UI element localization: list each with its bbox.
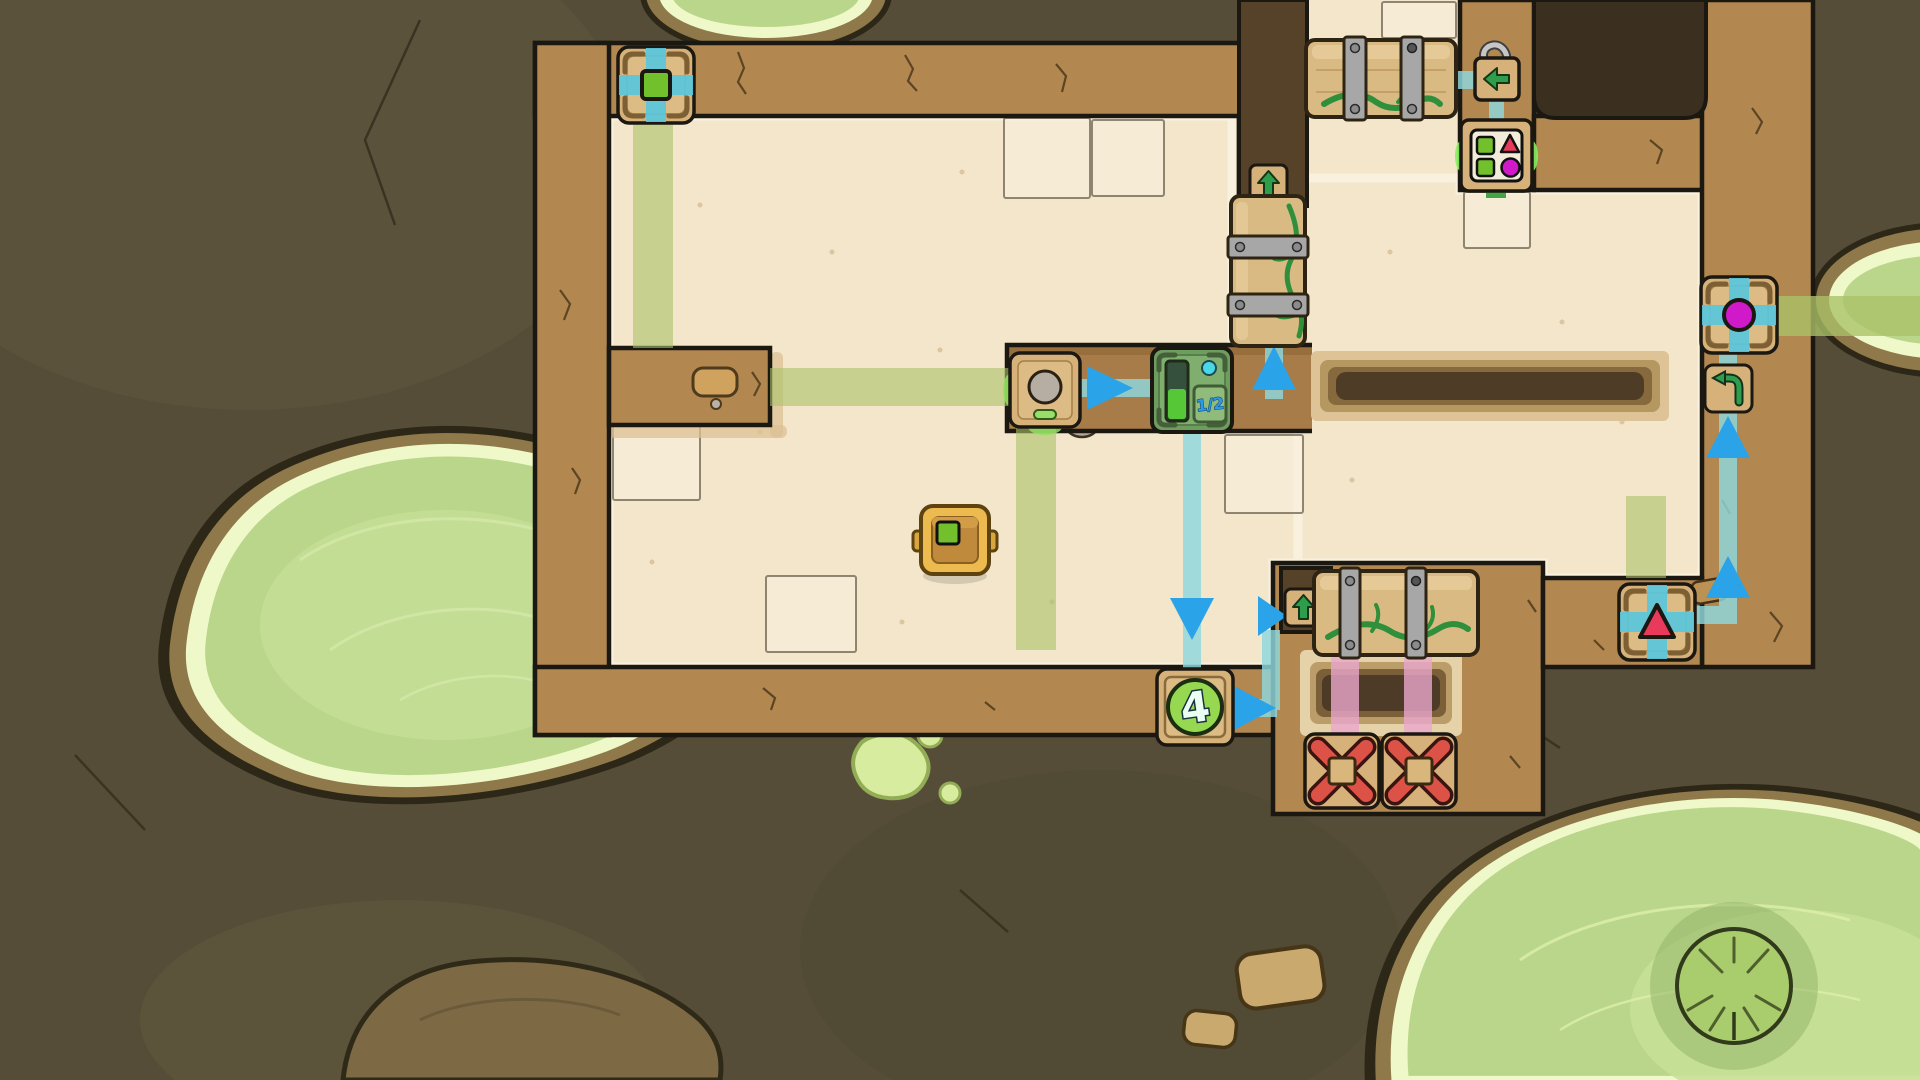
rock-small-1: [1235, 944, 1327, 1010]
emitter-tile-green-square[interactable]: [618, 47, 694, 123]
button-tile[interactable]: [1003, 353, 1080, 435]
dark-opening-top-right: [1534, 0, 1706, 118]
dispenser-machine[interactable]: 1/2: [1152, 348, 1232, 432]
green-square-icon: [642, 71, 670, 99]
green-square-icon: [1477, 159, 1494, 176]
lily-pad: [1677, 929, 1791, 1043]
crate-green-square[interactable]: [913, 506, 997, 584]
beam-to-pond: [1777, 296, 1920, 336]
chest-doorway[interactable]: [1228, 196, 1308, 346]
magenta-circle-icon: [1724, 300, 1754, 330]
beam-vertical-center: [1016, 428, 1056, 650]
green-square-icon: [1477, 137, 1494, 154]
emitter-tile-red-triangle[interactable]: [1619, 584, 1695, 660]
cyan-dot-icon: [1202, 361, 1216, 375]
beam-horizontal-corridor: [770, 368, 1010, 406]
gauge-fill: [1168, 389, 1186, 419]
green-square-icon: [937, 522, 959, 544]
x-tile-1[interactable]: [1305, 734, 1379, 808]
chest-top[interactable]: [1306, 37, 1456, 120]
counter-tile[interactable]: 4: [1157, 669, 1233, 745]
beam-vertical-right: [1626, 496, 1666, 578]
chest-bottom[interactable]: [1314, 568, 1478, 658]
rock-small-2: [1182, 1009, 1237, 1048]
return-arrow-tile[interactable]: [1705, 365, 1752, 412]
button-icon: [1029, 371, 1061, 403]
requirement-panel-tile[interactable]: [1455, 120, 1538, 191]
trench-pit: [1311, 351, 1669, 421]
bottom-pit: [1300, 650, 1462, 736]
magenta-circle-icon: [1502, 159, 1520, 177]
emitter-tile-magenta-circle[interactable]: [1701, 277, 1777, 353]
x-tile-2[interactable]: [1382, 734, 1456, 808]
game-canvas: 4 1/2: [0, 0, 1920, 1080]
beam-vertical-topleft: [633, 116, 673, 348]
fraction-label: 1/2: [1195, 394, 1225, 416]
